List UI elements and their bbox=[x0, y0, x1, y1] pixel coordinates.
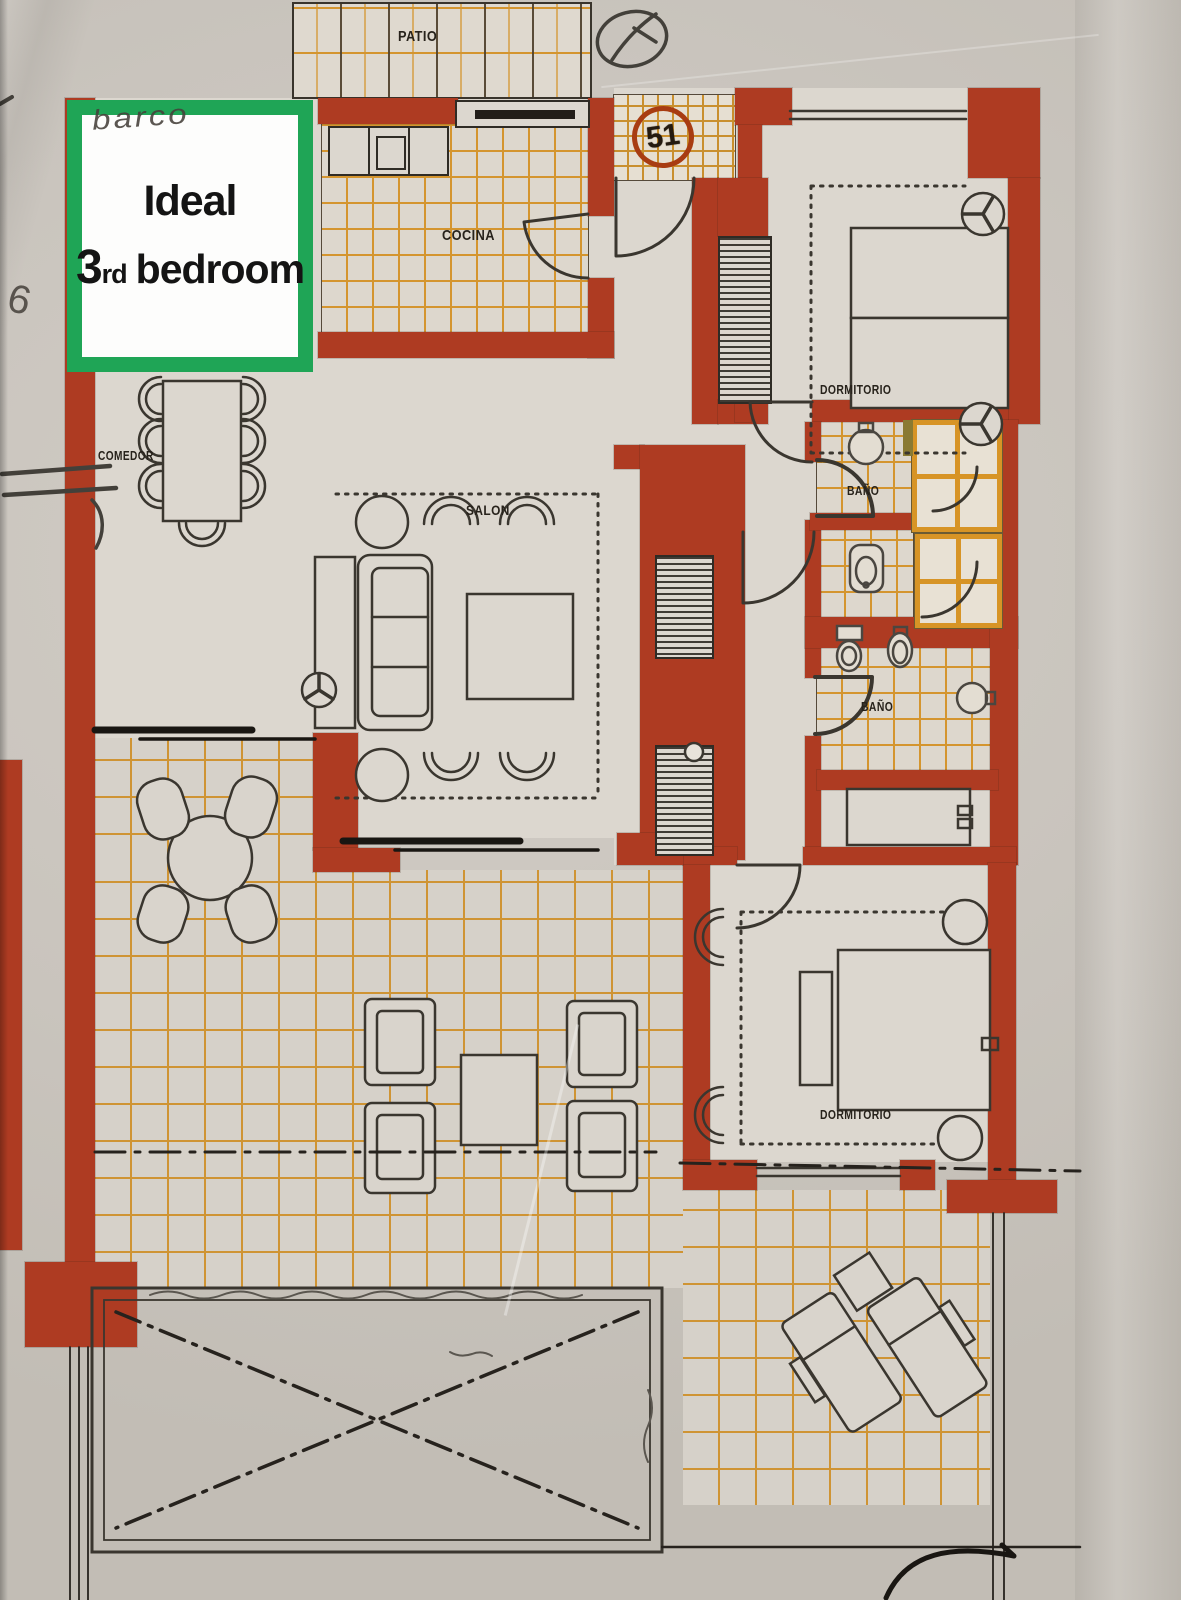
terrace-armchair-group bbox=[365, 999, 637, 1193]
water-line bbox=[150, 1292, 582, 1299]
salon-side-table bbox=[356, 749, 408, 801]
annotation-line2: 3rdbedroom bbox=[76, 240, 304, 295]
bed-single-1 bbox=[851, 228, 1008, 318]
label-cocina: COCINA bbox=[442, 227, 495, 244]
wardrobe bbox=[847, 789, 972, 845]
bath2-basin bbox=[957, 683, 995, 713]
label-dormitorio-bottom: DORMITORIO bbox=[820, 1107, 891, 1122]
pool bbox=[92, 1288, 662, 1552]
bedside-table bbox=[938, 1116, 982, 1160]
salon-armchair bbox=[424, 497, 554, 780]
bed-bench bbox=[800, 972, 832, 1085]
sun-loungers bbox=[763, 1230, 1000, 1469]
salon-side-table bbox=[356, 496, 408, 548]
bedroom1-window bbox=[790, 111, 966, 119]
annotation-ordinal: rd bbox=[102, 259, 127, 290]
terrace-table-set bbox=[132, 771, 282, 947]
coffee-table bbox=[467, 594, 573, 699]
bath2-toilet bbox=[837, 626, 862, 671]
annotation-box: Ideal 3rdbedroom bbox=[67, 100, 313, 372]
label-bano-top: BAÑO bbox=[847, 483, 879, 498]
sofa bbox=[358, 555, 432, 730]
bath2-bidet bbox=[888, 627, 912, 667]
bedside-table bbox=[943, 900, 987, 944]
bedroom2-window bbox=[757, 1168, 900, 1176]
label-patio: PATIO bbox=[398, 28, 437, 45]
unit-number: 51 bbox=[644, 118, 682, 156]
label-dormitorio-top: DORMITORIO bbox=[820, 382, 891, 397]
bed-double bbox=[838, 950, 990, 1110]
label-comedor: COMEDOR bbox=[98, 448, 154, 463]
annotation-number: 3 bbox=[76, 240, 102, 295]
annotation-line1: Ideal bbox=[144, 177, 237, 226]
bath1-toilet bbox=[850, 545, 883, 592]
label-salon: SALON bbox=[466, 502, 510, 518]
label-bano-bottom: BAÑO bbox=[861, 699, 893, 714]
floor-plan-scan: PATIO COCINA COMEDOR SALON DORMITORIO BA… bbox=[0, 0, 1181, 1600]
bath1-basin bbox=[849, 423, 883, 464]
handwritten-note: barco bbox=[91, 97, 191, 136]
pouf bbox=[302, 673, 336, 707]
bedroom2-armchair bbox=[695, 909, 723, 1143]
closet-knob bbox=[685, 743, 703, 761]
annotation-word: bedroom bbox=[136, 246, 304, 293]
water-squiggle bbox=[450, 1352, 492, 1356]
dining-table-set bbox=[139, 377, 265, 546]
terrace-coffee-table bbox=[461, 1055, 537, 1145]
